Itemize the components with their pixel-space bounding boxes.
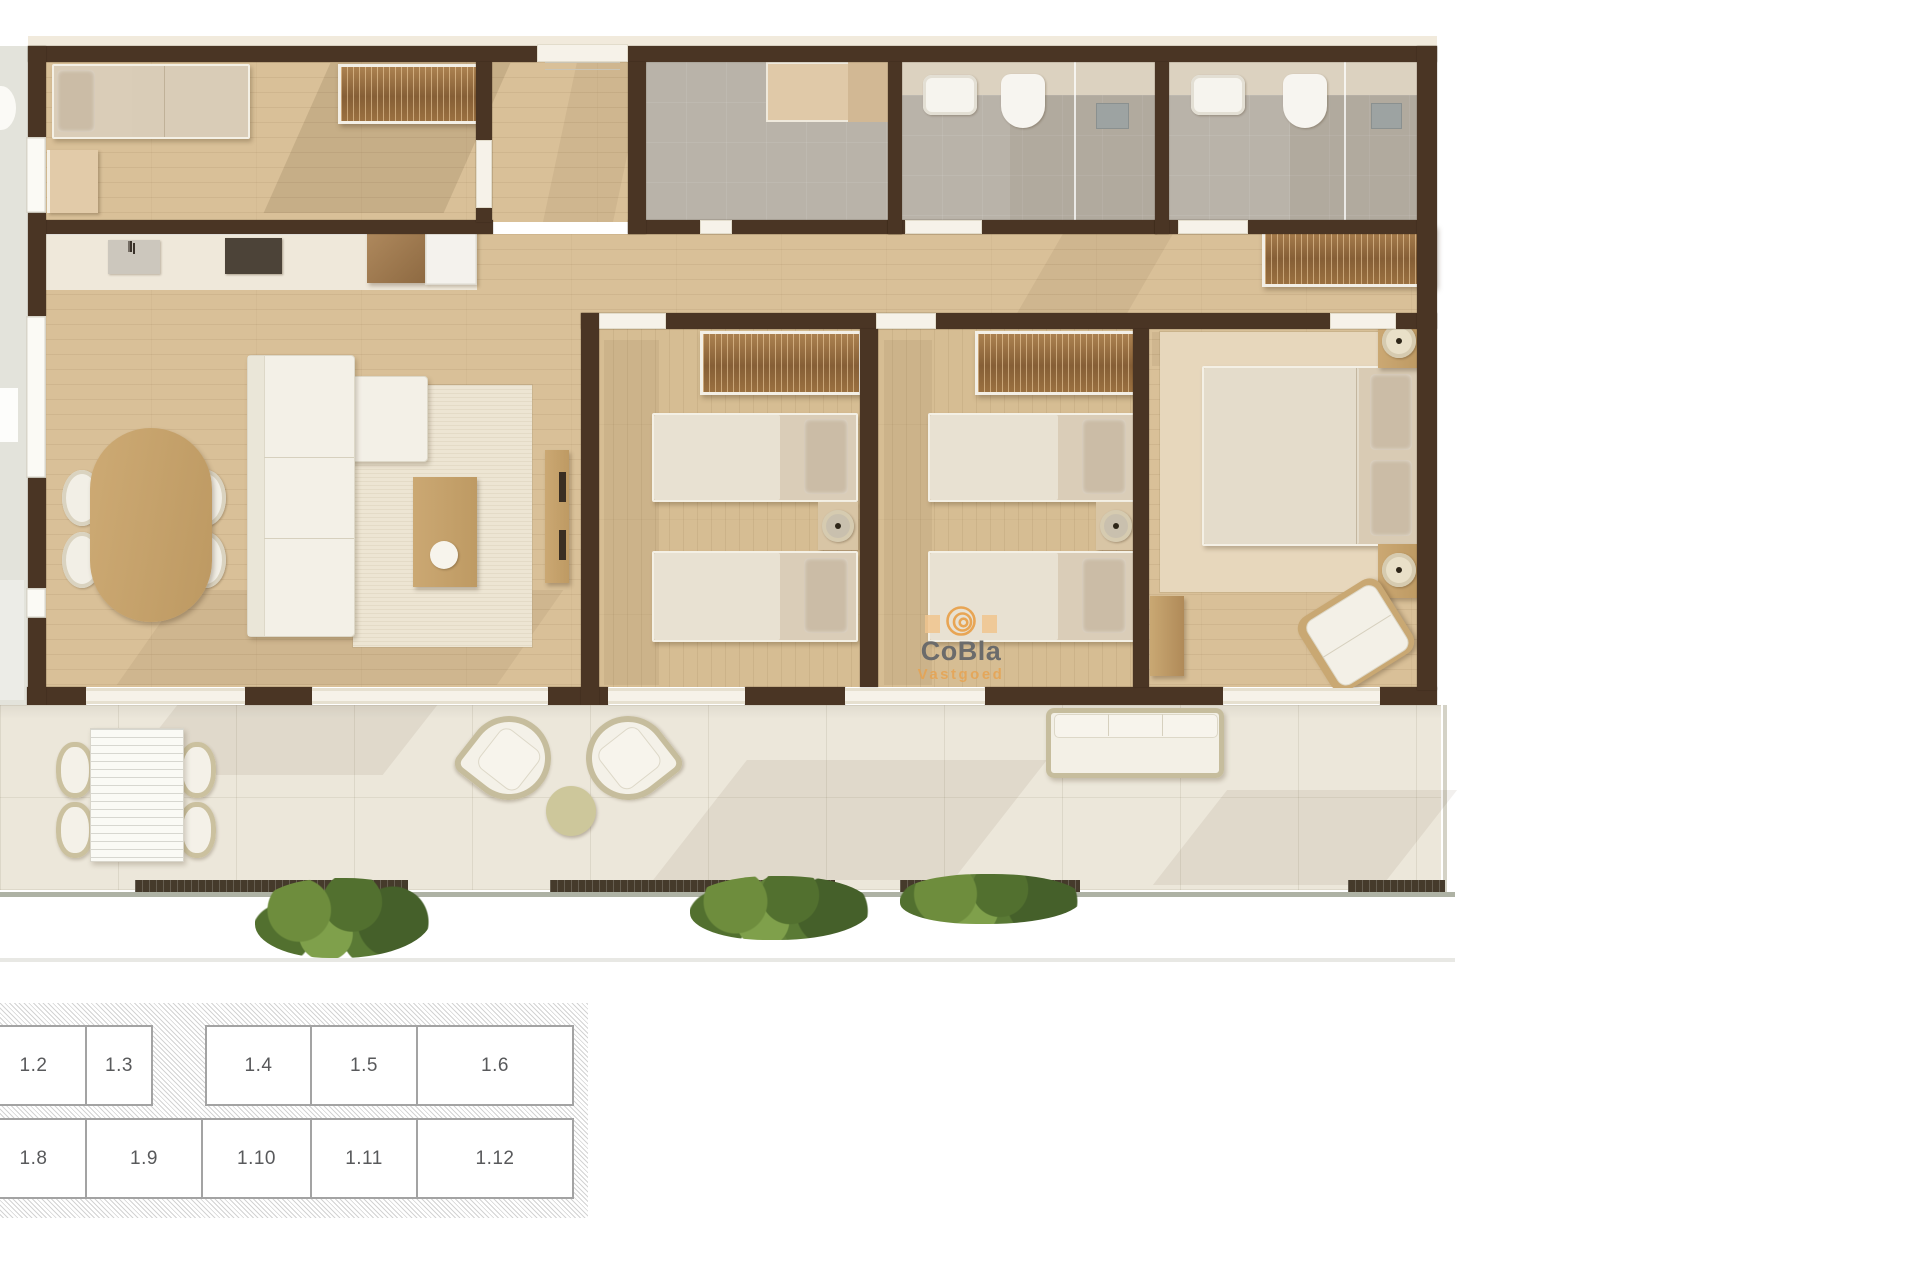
master-lamp-top: [1382, 324, 1416, 358]
wardrobe-bedroom1: [700, 331, 862, 395]
cobla-spiral-icon: [905, 604, 1017, 638]
watermark-brand: CoBla: [905, 638, 1017, 665]
master-lamp-bottom: [1382, 553, 1416, 587]
bathroom2-door: [1178, 220, 1248, 234]
wall: [745, 687, 845, 705]
bathroom1-shower-glass: [1074, 62, 1076, 222]
unit-label: 1.10: [237, 1148, 276, 1170]
watermark: CoBla Vastgoed: [905, 604, 1017, 682]
unit-label: 1.8: [20, 1148, 48, 1170]
bedroom2-door: [876, 313, 936, 329]
wall: [1417, 46, 1437, 690]
unit-label: 1.6: [481, 1055, 509, 1077]
bathroom2-sink: [1191, 75, 1245, 115]
unit-cell-1-4[interactable]: 1.4: [205, 1025, 312, 1106]
plant-cluster: [900, 874, 1082, 924]
plant-cluster: [690, 876, 872, 940]
wall: [28, 213, 46, 316]
unit-cell-1-6[interactable]: 1.6: [416, 1025, 574, 1106]
unit-label: 1.4: [245, 1055, 273, 1077]
bedroom2-lamp: [1100, 510, 1132, 542]
wardrobe-top-bedroom: [338, 64, 480, 124]
wall: [628, 62, 646, 234]
logo-block-right: [982, 615, 997, 633]
bathroom1-door: [905, 220, 982, 234]
coffee-table: [413, 477, 477, 587]
tv-cabinet: [545, 450, 569, 583]
logo-block-left: [925, 615, 940, 633]
tv: [559, 530, 566, 560]
wall: [985, 687, 1223, 705]
wall: [628, 220, 902, 234]
single-bed: [52, 64, 250, 139]
planter: [1348, 880, 1445, 892]
kitchen-fridge: [425, 227, 477, 285]
entry-door-frame: [545, 62, 620, 70]
facade-edge: [28, 36, 1437, 46]
unit-label: 1.11: [345, 1148, 383, 1170]
wall: [628, 46, 1437, 62]
floor-entry-hall: [492, 62, 628, 222]
bedroom1-lamp: [822, 510, 854, 542]
terrace-floor: [0, 705, 1447, 890]
terrace-door-bedroom1: [608, 688, 745, 704]
kitchen-sink: [108, 240, 160, 274]
outdoor-chair: [56, 802, 94, 858]
balcony-edge-line: [0, 958, 1455, 962]
wall: [28, 618, 46, 705]
entry-door: [537, 44, 628, 62]
unit-label: 1.3: [105, 1055, 133, 1077]
unit-cell-1-9[interactable]: 1.9: [85, 1118, 203, 1199]
terrace-door-living1: [86, 688, 245, 704]
watermark-subtitle: Vastgoed: [905, 667, 1017, 682]
unit-cell-1-2[interactable]: 1.2: [0, 1025, 87, 1106]
outdoor-sofa: [1046, 708, 1224, 778]
top-bedroom-door: [476, 140, 492, 208]
unit-label: 1.9: [130, 1148, 158, 1170]
wardrobe-hall: [1262, 225, 1436, 287]
window-living2: [26, 588, 46, 618]
unit-cell-1-8[interactable]: 1.8: [0, 1118, 87, 1199]
bathroom2-shower-glass: [1344, 62, 1346, 222]
bedroom1-bed-lower: [652, 551, 858, 642]
unit-label: 1.12: [476, 1148, 515, 1170]
wall: [888, 62, 902, 234]
bathroom2-toilet: [1283, 74, 1327, 128]
table-tray: [430, 541, 458, 569]
wall: [581, 313, 1437, 329]
dining-table: [90, 428, 212, 622]
kitchen-cooktop: [225, 238, 282, 274]
bed-sheet: [132, 66, 248, 137]
unit-selector-grid: 1.2 1.3 1.4 1.5 1.6 1.8 1.9 1.10 1.11 1.…: [0, 1003, 588, 1218]
wall: [245, 687, 312, 705]
unit-label: 1.5: [350, 1055, 378, 1077]
bedroom1-bed-upper: [652, 413, 858, 502]
floorplan-image: CoBla Vastgoed: [0, 0, 1920, 1000]
kitchen-faucet-icon: [130, 241, 132, 252]
wall: [860, 329, 878, 687]
sofa-body: [247, 355, 355, 637]
bed-pillow: [57, 70, 95, 132]
laundry-cabinets: [766, 62, 888, 122]
outdoor-chair: [56, 742, 94, 798]
unit-cell-1-11[interactable]: 1.11: [310, 1118, 418, 1199]
terrace-door-bedroom2: [845, 688, 985, 704]
window-top-bedroom: [26, 137, 46, 213]
unit-cell-1-5[interactable]: 1.5: [310, 1025, 418, 1106]
outdoor-dining-table: [90, 728, 184, 862]
terrace-door-master: [1223, 688, 1380, 704]
wall: [581, 313, 599, 705]
window-living1: [26, 316, 46, 478]
terrace-door-living2: [312, 688, 548, 704]
terrace-right-edge: [1441, 705, 1447, 897]
bathroom2-shower-head: [1371, 103, 1402, 129]
neighbor-object: [0, 580, 24, 700]
bedroom1-door: [596, 313, 666, 329]
bathroom1-sink: [923, 75, 977, 115]
bathroom1-shower-head: [1096, 103, 1129, 129]
wall: [45, 220, 493, 234]
master-door: [1330, 313, 1396, 329]
unit-cell-1-12[interactable]: 1.12: [416, 1118, 574, 1199]
wardrobe-bedroom2: [975, 331, 1139, 395]
laundry-unit: [47, 150, 98, 213]
wall: [28, 46, 46, 137]
tv: [559, 472, 566, 502]
unit-cell-1-10[interactable]: 1.10: [201, 1118, 312, 1199]
outdoor-side-table: [546, 786, 596, 836]
unit-label: 1.2: [20, 1055, 48, 1077]
unit-cell-1-3[interactable]: 1.3: [85, 1025, 153, 1106]
plant-cluster: [255, 878, 432, 958]
laundry-door: [700, 220, 732, 234]
wall: [1155, 62, 1169, 234]
wall: [548, 687, 608, 705]
wall: [1133, 329, 1149, 687]
bedroom2-bed-upper: [928, 413, 1136, 502]
neighbor-object: [0, 388, 18, 442]
wall: [28, 46, 537, 62]
master-bed: [1202, 366, 1419, 546]
wall: [28, 478, 46, 588]
floorplan-page: CoBla Vastgoed 1.2 1.3 1.4 1.5 1.6 1.8 1…: [0, 0, 1920, 1280]
master-dresser: [1150, 596, 1184, 676]
bathroom1-toilet: [1001, 74, 1045, 128]
kitchen-cabinet: [367, 227, 425, 283]
